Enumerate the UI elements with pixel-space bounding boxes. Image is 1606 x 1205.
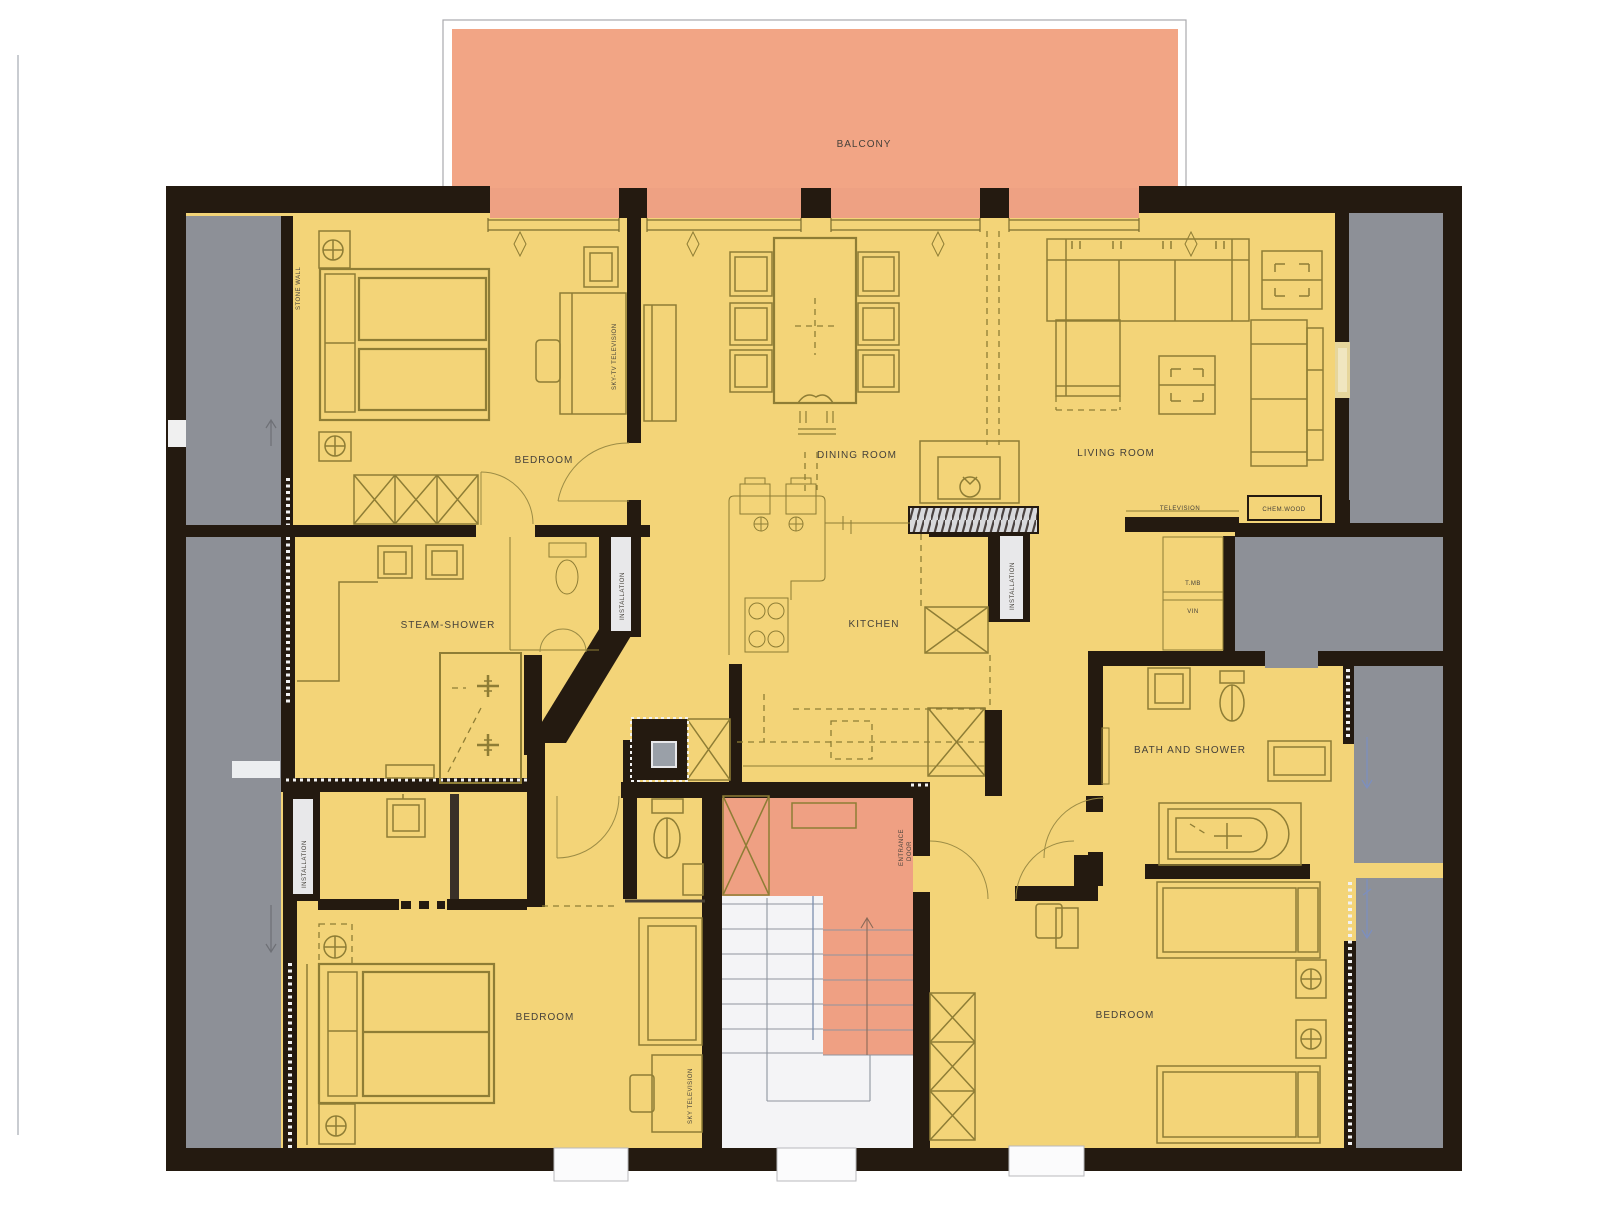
svg-text:STEAM-SHOWER: STEAM-SHOWER bbox=[401, 620, 496, 631]
svg-text:BALCONY: BALCONY bbox=[837, 139, 892, 150]
svg-text:KITCHEN: KITCHEN bbox=[849, 619, 900, 630]
svg-text:DINING ROOM: DINING ROOM bbox=[817, 450, 897, 461]
svg-text:BEDROOM: BEDROOM bbox=[515, 455, 574, 466]
svg-text:BEDROOM: BEDROOM bbox=[1096, 1010, 1155, 1021]
svg-text:VIN: VIN bbox=[1187, 609, 1199, 615]
svg-text:INSTALLATION: INSTALLATION bbox=[620, 572, 626, 620]
svg-text:LIVING ROOM: LIVING ROOM bbox=[1077, 448, 1155, 459]
svg-text:SKY-TV TELEVISION: SKY-TV TELEVISION bbox=[612, 323, 618, 390]
svg-text:STONE WALL: STONE WALL bbox=[296, 266, 302, 310]
svg-text:BATH AND SHOWER: BATH AND SHOWER bbox=[1134, 745, 1246, 756]
svg-text:SKY TELEVISION: SKY TELEVISION bbox=[688, 1068, 694, 1124]
svg-text:ENTRANCE: ENTRANCE bbox=[899, 829, 905, 866]
svg-text:BEDROOM: BEDROOM bbox=[516, 1012, 575, 1023]
svg-text:T.MB: T.MB bbox=[1185, 581, 1201, 587]
svg-text:DOOR: DOOR bbox=[907, 841, 913, 861]
svg-text:CHEM.WOOD: CHEM.WOOD bbox=[1262, 507, 1305, 513]
svg-text:INSTALLATION: INSTALLATION bbox=[1010, 562, 1016, 610]
svg-text:INSTALLATION: INSTALLATION bbox=[302, 840, 308, 888]
